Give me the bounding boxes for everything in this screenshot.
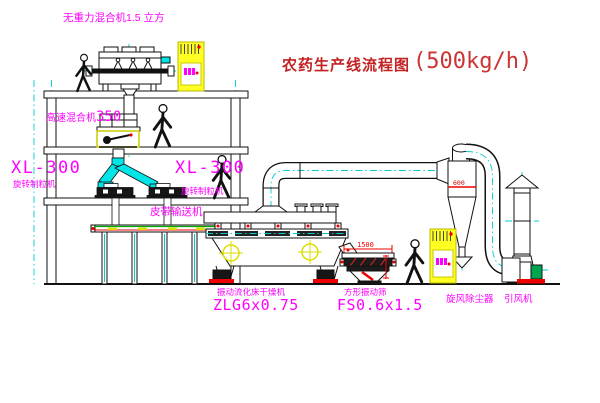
granulator-right-model-label: XL-300 xyxy=(175,160,245,177)
control-cabinet-top xyxy=(178,42,204,91)
cyclone-label: 旋风除尘器 xyxy=(446,295,494,305)
granulator-left-name-label: 旋转制粒机 xyxy=(13,180,56,189)
sieve-length-dimension: 1500 xyxy=(357,241,374,249)
exhaust-duct xyxy=(263,158,450,208)
fan-label: 引风机 xyxy=(504,295,533,305)
gravity-mixer-machine xyxy=(86,47,174,114)
dryer-model-label: ZLG6x0.75 xyxy=(213,298,299,313)
belt-conveyor-label: 皮带输送机 xyxy=(150,207,203,218)
page-title: 农药生产线流程图 (500kg/h) xyxy=(282,49,532,75)
induced-draft-fan-machine xyxy=(502,258,545,284)
high-speed-mixer-name: 高速混合机 xyxy=(46,113,96,124)
title-text: 农药生产线流程图 xyxy=(282,49,410,75)
process-flow-diagram: 无重力混合机1.5 立方 农药生产线流程图 (500kg/h) 高速混合机350… xyxy=(0,0,600,403)
control-cabinet-bottom xyxy=(430,229,456,283)
cyclone-diameter-dimension: 600 xyxy=(453,179,465,187)
gravity-mixer-label: 无重力混合机1.5 立方 xyxy=(63,13,165,24)
high-speed-mixer-label: 高速混合机350 xyxy=(46,109,121,125)
belt-conveyor-machine xyxy=(91,225,219,284)
title-capacity: (500kg/h) xyxy=(413,49,532,74)
person-figure-1 xyxy=(76,54,90,91)
fluid-bed-dryer-machine xyxy=(204,204,357,283)
granulator-left-model-label: XL-300 xyxy=(11,160,81,177)
high-speed-mixer-size: 350 xyxy=(96,109,121,125)
sieve-model-label: FS0.6x1.5 xyxy=(337,298,423,313)
person-figure-4 xyxy=(406,240,423,283)
granulator-right-name-label: 旋转制粒机 xyxy=(181,187,224,196)
person-figure-2 xyxy=(154,105,171,147)
